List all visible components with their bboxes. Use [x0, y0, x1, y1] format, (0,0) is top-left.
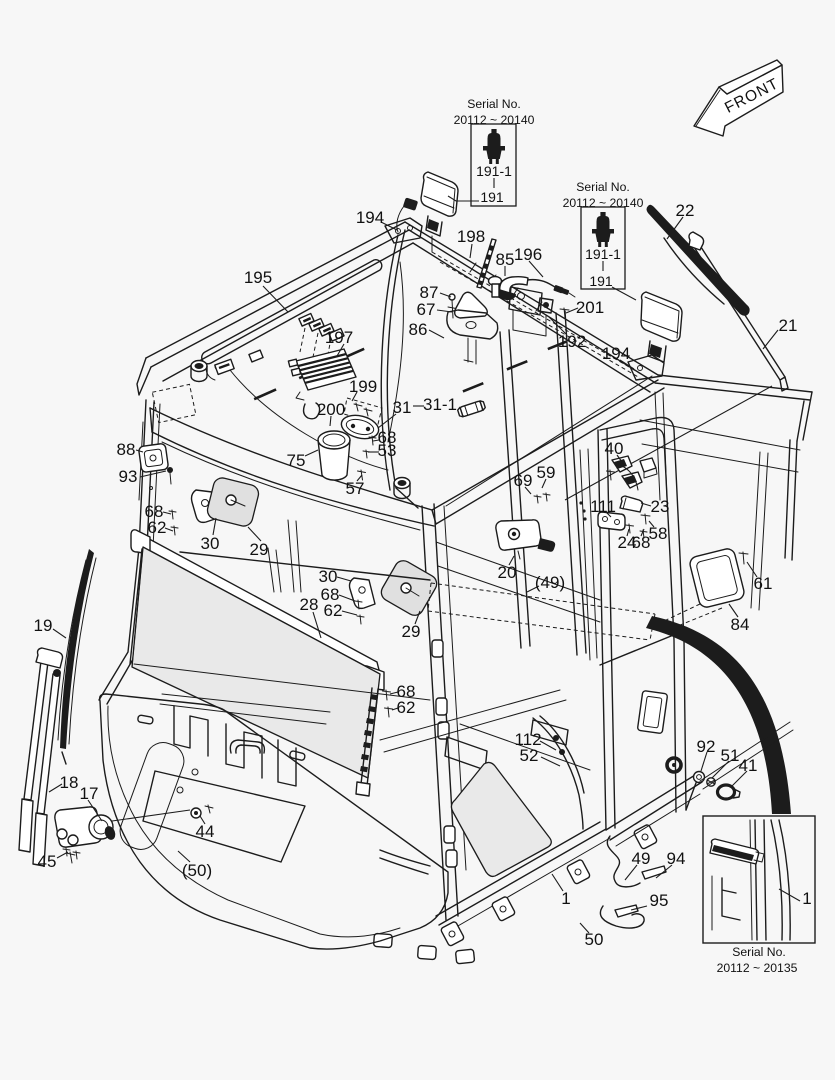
svg-text:23: 23: [651, 497, 670, 516]
svg-text:88: 88: [117, 440, 136, 459]
svg-text:194: 194: [602, 344, 630, 363]
svg-text:22: 22: [676, 201, 695, 220]
svg-text:62: 62: [148, 518, 167, 537]
svg-text:198: 198: [457, 227, 485, 246]
svg-text:192: 192: [558, 332, 586, 351]
svg-text:200: 200: [317, 400, 345, 419]
svg-text:197: 197: [325, 328, 353, 347]
svg-text:(50): (50): [182, 861, 212, 880]
svg-text:17: 17: [80, 784, 99, 803]
svg-text:57: 57: [346, 479, 365, 498]
svg-text:1: 1: [561, 889, 570, 908]
svg-text:95: 95: [650, 891, 669, 910]
svg-text:62: 62: [324, 601, 343, 620]
svg-text:(49): (49): [535, 573, 565, 592]
svg-text:Serial No.: Serial No.: [467, 97, 521, 111]
svg-text:194: 194: [356, 208, 384, 227]
svg-text:92: 92: [697, 737, 716, 756]
svg-text:20112 ~ 20135: 20112 ~ 20135: [717, 961, 798, 975]
svg-text:19: 19: [34, 616, 53, 635]
svg-text:68: 68: [632, 533, 651, 552]
svg-text:52: 52: [520, 746, 539, 765]
svg-text:59: 59: [537, 463, 556, 482]
svg-text:1: 1: [802, 889, 811, 908]
svg-text:62: 62: [397, 698, 416, 717]
svg-text:Serial No.: Serial No.: [732, 945, 786, 959]
svg-text:191-1: 191-1: [585, 246, 621, 262]
svg-text:40: 40: [605, 439, 624, 458]
svg-text:111: 111: [590, 497, 616, 516]
svg-text:53: 53: [378, 441, 397, 460]
svg-text:69: 69: [514, 471, 533, 490]
svg-text:61: 61: [754, 574, 773, 593]
svg-text:31: 31: [393, 398, 412, 417]
svg-text:93: 93: [119, 467, 138, 486]
svg-text:21: 21: [779, 316, 798, 335]
svg-text:86: 86: [409, 320, 428, 339]
svg-text:191-1: 191-1: [476, 163, 512, 179]
svg-text:51: 51: [721, 746, 740, 765]
svg-text:195: 195: [244, 268, 272, 287]
svg-text:20112 ~ 20140: 20112 ~ 20140: [563, 196, 644, 210]
svg-text:30: 30: [201, 534, 220, 553]
svg-text:Serial No.: Serial No.: [576, 180, 630, 194]
svg-text:18: 18: [60, 773, 79, 792]
svg-text:84: 84: [731, 615, 750, 634]
svg-text:41: 41: [739, 756, 758, 775]
svg-text:191: 191: [480, 189, 504, 205]
svg-text:199: 199: [349, 377, 377, 396]
svg-text:20112 ~ 20140: 20112 ~ 20140: [454, 113, 535, 127]
svg-text:50: 50: [585, 930, 604, 949]
svg-text:49: 49: [632, 849, 651, 868]
svg-text:67: 67: [417, 300, 436, 319]
svg-text:85: 85: [496, 250, 515, 269]
svg-text:201: 201: [576, 298, 604, 317]
svg-text:28: 28: [300, 595, 319, 614]
svg-text:29: 29: [402, 622, 421, 641]
svg-text:94: 94: [667, 849, 686, 868]
svg-text:44: 44: [196, 822, 215, 841]
svg-text:45: 45: [38, 852, 57, 871]
svg-text:191: 191: [589, 273, 613, 289]
svg-text:31-1: 31-1: [423, 395, 457, 414]
svg-text:75: 75: [287, 451, 306, 470]
svg-text:58: 58: [649, 524, 668, 543]
svg-text:196: 196: [514, 245, 542, 264]
svg-text:20: 20: [498, 563, 517, 582]
svg-text:29: 29: [250, 540, 269, 559]
svg-text:30: 30: [319, 567, 338, 586]
